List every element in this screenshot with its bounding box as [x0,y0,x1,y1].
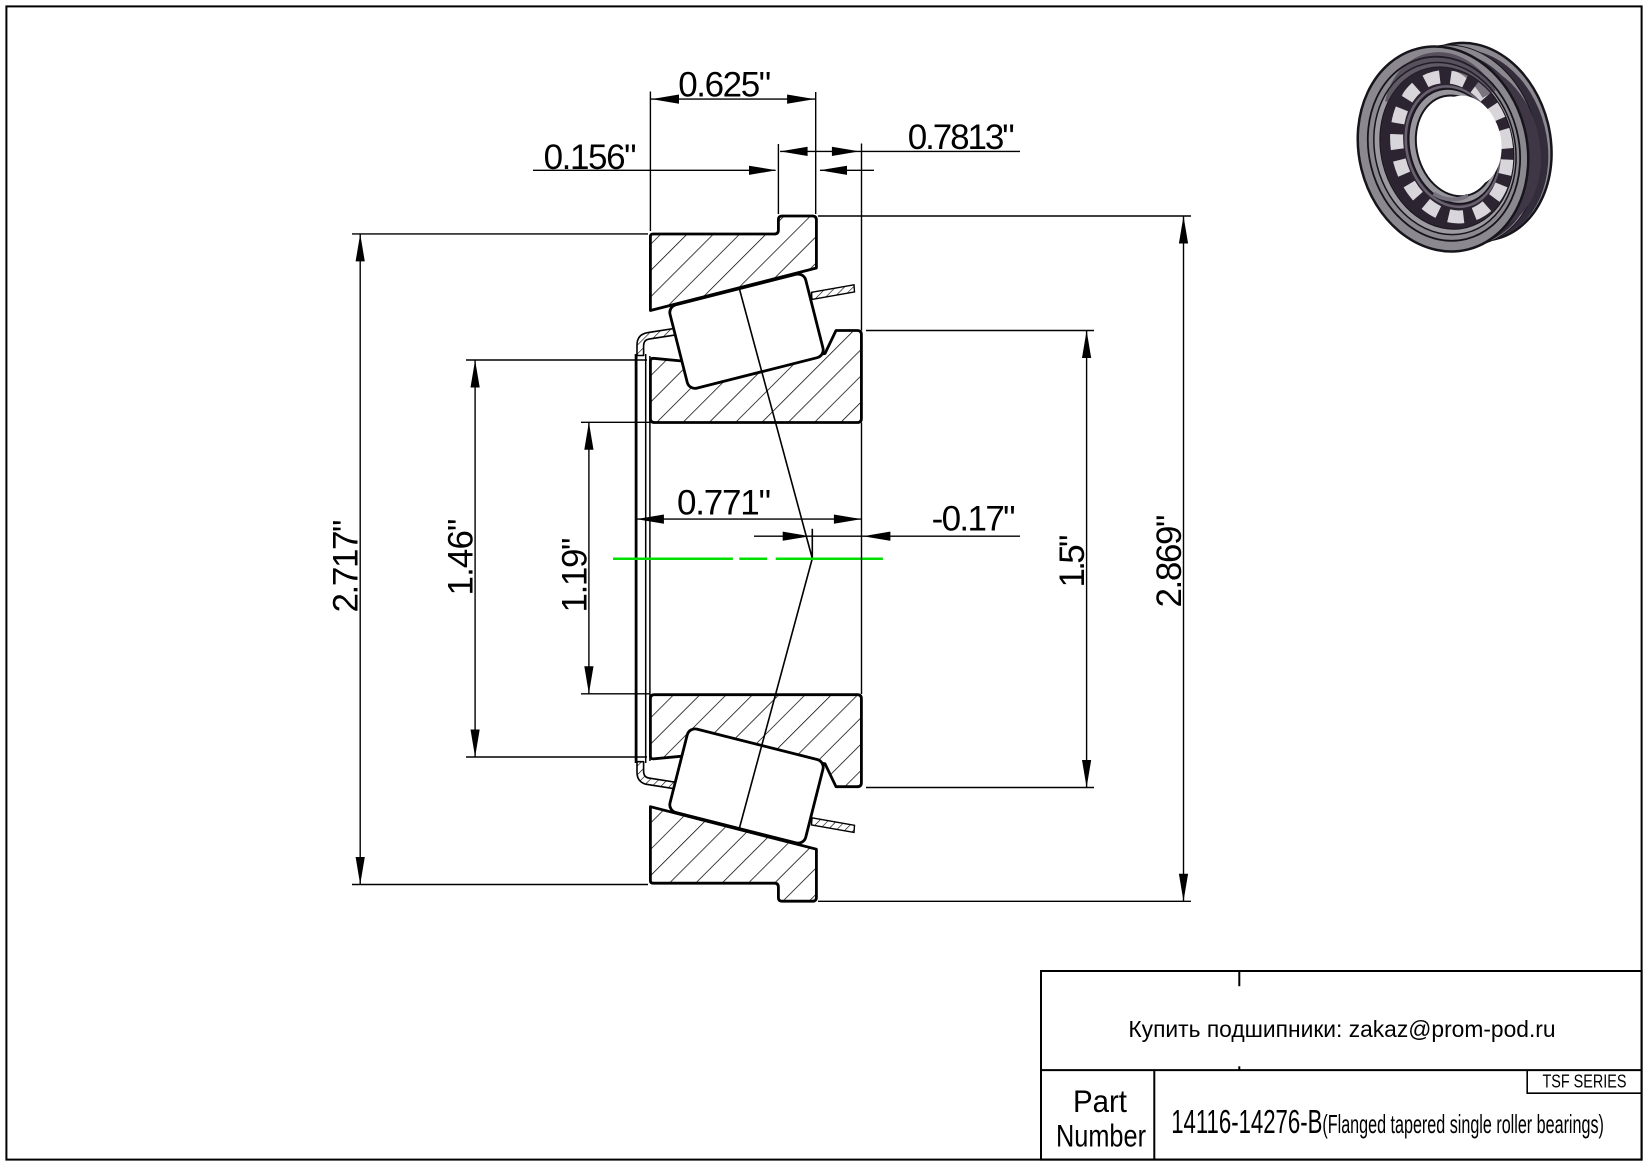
svg-text:TSF SERIES: TSF SERIES [1543,1071,1627,1092]
svg-text:(Flanged tapered single roller: (Flanged tapered single roller bearings) [1322,1109,1604,1139]
svg-text:Number: Number [1056,1118,1146,1154]
svg-text:Купить подшипники: zakaz@prom-: Купить подшипники: zakaz@prom-pod.ru [1128,1016,1555,1042]
svg-text:0.625": 0.625" [678,66,771,105]
svg-text:0.771": 0.771" [677,484,771,523]
svg-text:2.717": 2.717" [327,520,366,613]
svg-text:-0.17": -0.17" [932,499,1016,538]
svg-text:1.19": 1.19" [555,538,594,613]
svg-text:Part: Part [1073,1083,1127,1119]
svg-text:0.7813": 0.7813" [908,118,1015,157]
svg-text:2.869": 2.869" [1150,515,1189,608]
svg-text:1.5": 1.5" [1053,535,1092,588]
svg-text:0.156": 0.156" [544,138,637,177]
svg-text:1.46": 1.46" [441,519,480,596]
svg-text:14116-14276-B: 14116-14276-B [1171,1103,1322,1140]
